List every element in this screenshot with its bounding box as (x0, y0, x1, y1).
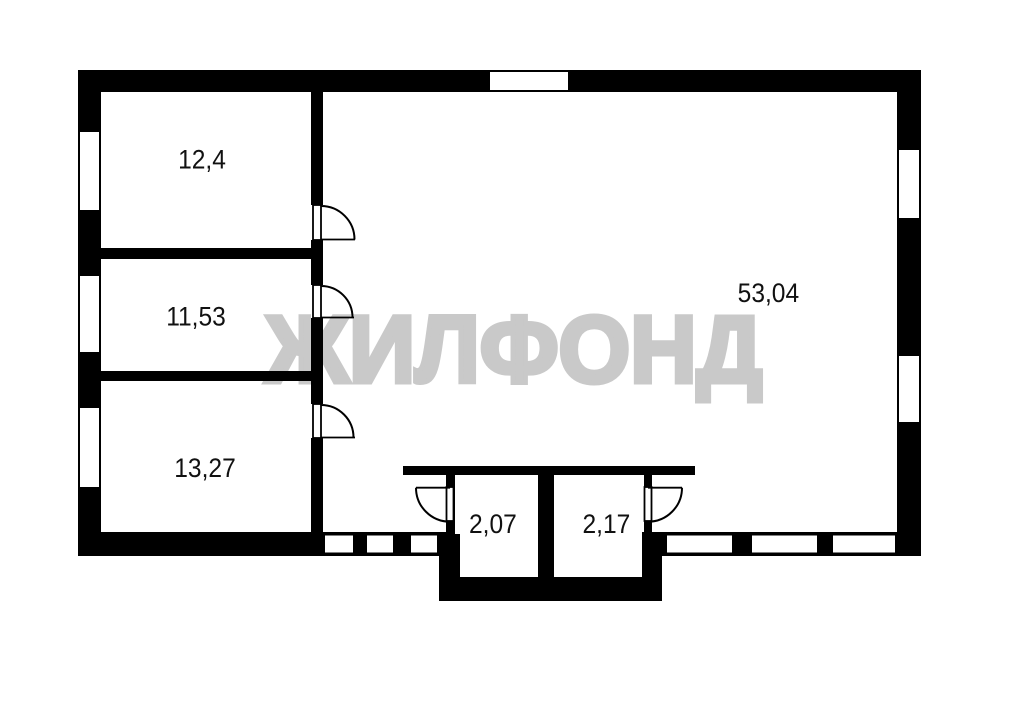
svg-text:53,04: 53,04 (738, 279, 799, 308)
svg-text:ЖИЛФОНД: ЖИЛФОНД (265, 296, 763, 403)
svg-text:2,17: 2,17 (583, 510, 631, 539)
svg-text:11,53: 11,53 (166, 302, 226, 331)
svg-text:12,4: 12,4 (178, 146, 226, 175)
svg-text:2,07: 2,07 (469, 510, 517, 539)
svg-text:13,27: 13,27 (174, 454, 235, 483)
